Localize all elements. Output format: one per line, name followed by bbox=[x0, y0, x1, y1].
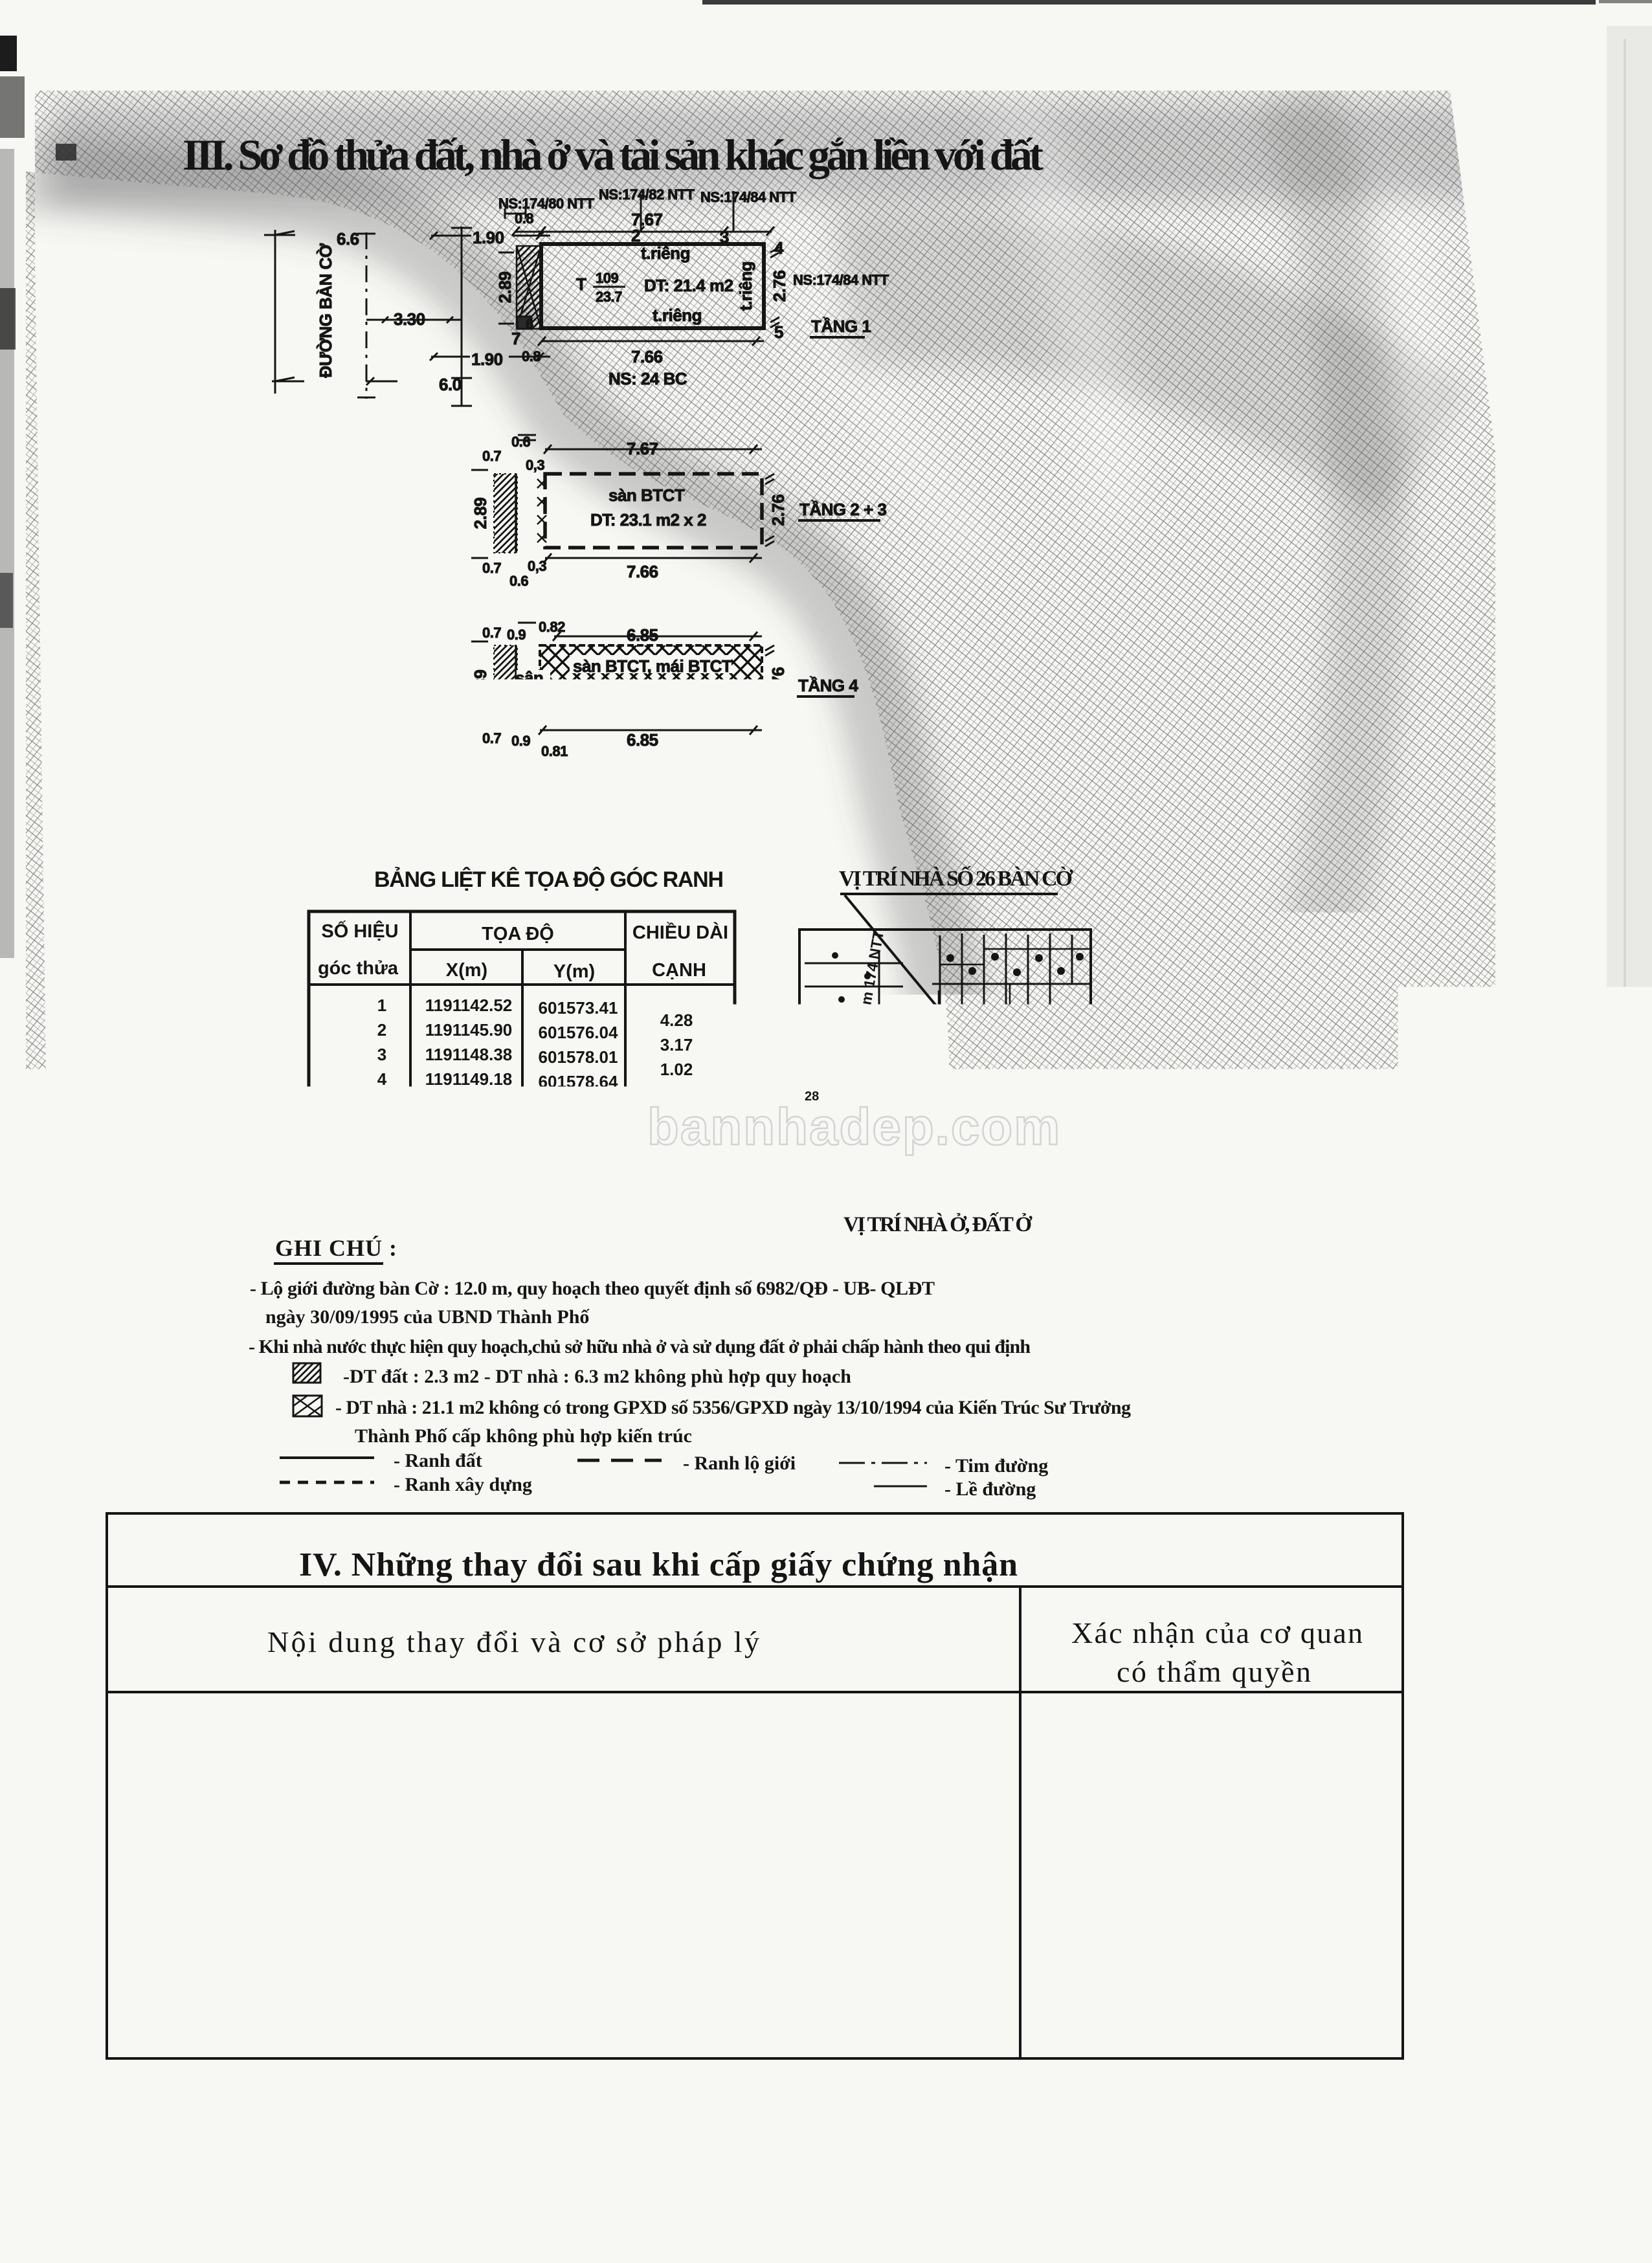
svg-text:1191148.38: 1191148.38 bbox=[425, 1045, 513, 1064]
svg-text:- Khi nhà nước thực hiện quy h: - Khi nhà nước thực hiện quy hoạch,chủ s… bbox=[249, 1336, 1031, 1357]
svg-text:t.riêng: t.riêng bbox=[736, 262, 755, 311]
svg-text:0,3: 0,3 bbox=[526, 457, 544, 473]
svg-text:601578.01: 601578.01 bbox=[539, 1047, 618, 1067]
svg-text:109: 109 bbox=[596, 270, 618, 286]
svg-text:6.85: 6.85 bbox=[627, 730, 658, 750]
svg-text:1191142.52: 1191142.52 bbox=[425, 1170, 513, 1190]
svg-text:GHI CHÚ :: GHI CHÚ : bbox=[275, 1235, 397, 1261]
svg-text:ngày 30/09/1995 của UBND Thành: ngày 30/09/1995 của UBND Thành Phố bbox=[265, 1306, 590, 1328]
svg-text:601580.81: 601580.81 bbox=[539, 1097, 618, 1116]
svg-text:3.17: 3.17 bbox=[660, 1035, 693, 1054]
svg-text:TẦNG 1: TẦNG 1 bbox=[811, 317, 871, 336]
svg-text:sàn BTCT, mái BTCT: sàn BTCT, mái BTCT bbox=[573, 656, 732, 676]
svg-text:7: 7 bbox=[511, 329, 520, 348]
svg-text:- Lề đường: - Lề đường bbox=[944, 1478, 1036, 1500]
svg-text:- Ranh lộ giới: - Ranh lộ giới bbox=[683, 1453, 796, 1474]
svg-text:Đ.BÀN CỜ: Đ.BÀN CỜ bbox=[821, 1067, 914, 1087]
svg-text:góc thửa: góc thửa bbox=[318, 958, 399, 979]
svg-text:2.89: 2.89 bbox=[471, 670, 490, 702]
svg-text:2.89: 2.89 bbox=[495, 272, 515, 304]
svg-text:sân: sân bbox=[515, 668, 543, 687]
svg-text:601573.41: 601573.41 bbox=[539, 1172, 618, 1191]
svg-text:TẦNG 2 + 3: TẦNG 2 + 3 bbox=[799, 500, 886, 519]
svg-text:7.67: 7.67 bbox=[627, 439, 658, 458]
svg-text:2.89: 2.89 bbox=[471, 498, 490, 530]
svg-text:NS:174/84 NTT: NS:174/84 NTT bbox=[793, 272, 889, 288]
svg-text:6.0: 6.0 bbox=[439, 375, 462, 394]
svg-text:Y(m): Y(m) bbox=[553, 961, 595, 982]
svg-text:23.7: 23.7 bbox=[596, 289, 622, 305]
svg-text:1191140.74: 1191140.74 bbox=[425, 1143, 513, 1163]
svg-text:601576.04: 601576.04 bbox=[539, 1023, 618, 1042]
svg-text:TỌA ĐỘ: TỌA ĐỘ bbox=[482, 922, 554, 944]
svg-text:5: 5 bbox=[774, 322, 783, 342]
svg-text:- Ranh xây dựng: - Ranh xây dựng bbox=[394, 1474, 532, 1495]
svg-text:0.7: 0.7 bbox=[482, 560, 501, 576]
svg-text:7.66: 7.66 bbox=[631, 347, 663, 366]
svg-text:0,3: 0,3 bbox=[528, 558, 546, 574]
svg-text:NS:174/80 NTT: NS:174/80 NTT bbox=[498, 195, 595, 212]
svg-text:- Ranh đất: - Ranh đất bbox=[394, 1450, 482, 1471]
svg-text:0.6: 0.6 bbox=[509, 573, 528, 589]
svg-text:2.76: 2.76 bbox=[770, 271, 789, 302]
svg-text:X(m): X(m) bbox=[446, 960, 487, 981]
svg-text:1191140.90: 1191140.90 bbox=[425, 1119, 513, 1138]
svg-text:1: 1 bbox=[377, 996, 386, 1015]
svg-text:0.6: 0.6 bbox=[511, 434, 530, 450]
svg-text:t.riêng: t.riêng bbox=[653, 306, 702, 325]
svg-text:1191142.52: 1191142.52 bbox=[425, 996, 513, 1015]
svg-text:Xác nhận của cơ quan: Xác nhận của cơ quan bbox=[1071, 1616, 1363, 1649]
svg-text:sàn BTCT: sàn BTCT bbox=[608, 485, 685, 505]
svg-text:0.7: 0.7 bbox=[482, 448, 501, 464]
svg-text:10.0: 10.0 bbox=[858, 1022, 887, 1039]
svg-text:1191147.47: 1191147.47 bbox=[425, 1094, 513, 1113]
svg-text:VỊ TRÍ NHÀ Ở, ĐẤT Ở: VỊ TRÍ NHÀ Ở, ĐẤT Ở bbox=[843, 1211, 1032, 1236]
svg-text:SỐ HIỆU: SỐ HIỆU bbox=[321, 920, 398, 942]
svg-text:ĐƯỜNG BÀN CỜ: ĐƯỜNG BÀN CỜ bbox=[316, 243, 335, 378]
svg-text:- Lộ giới đường bàn Cờ : 12.0: - Lộ giới đường bàn Cờ : 12.0 m, quy hoạ… bbox=[250, 1278, 935, 1299]
svg-text:t.riêng: t.riêng bbox=[641, 243, 690, 263]
svg-text:0.8: 0.8 bbox=[522, 348, 541, 364]
svg-text:III. Sơ đồ thửa đất, nhà ở và: III. Sơ đồ thửa đất, nhà ở và tài sản kh… bbox=[183, 130, 1044, 179]
svg-text:6: 6 bbox=[377, 1119, 386, 1138]
svg-text:VỊ TRÍ NHÀ SỐ 26 BÀN CỜ: VỊ TRÍ NHÀ SỐ 26 BÀN CỜ bbox=[839, 865, 1073, 891]
svg-text:NS:174/82 NTT: NS:174/82 NTT bbox=[599, 186, 695, 203]
svg-text:601575.82: 601575.82 bbox=[539, 1121, 618, 1141]
svg-text:Thành Phố cấp không phù hợp ki: Thành Phố cấp không phù hợp kiến trúc bbox=[355, 1425, 692, 1447]
svg-text:3: 3 bbox=[377, 1045, 386, 1064]
svg-text:7.66: 7.66 bbox=[627, 562, 658, 581]
svg-text:1191149.18: 1191149.18 bbox=[425, 1069, 513, 1089]
svg-text:3.30: 3.30 bbox=[394, 309, 425, 329]
svg-text:- Tim đường: - Tim đường bbox=[944, 1455, 1048, 1477]
svg-text:DT: 23.1 m2 x 2: DT: 23.1 m2 x 2 bbox=[590, 510, 706, 530]
svg-text:2.89: 2.89 bbox=[660, 1164, 693, 1183]
svg-text:NS:174/84 NTT: NS:174/84 NTT bbox=[700, 189, 797, 205]
svg-text:2: 2 bbox=[377, 1020, 386, 1040]
svg-text:6.85: 6.85 bbox=[627, 625, 658, 645]
svg-text:Nội dung thay đổi và cơ sở phá: Nội dung thay đổi và cơ sở pháp lý bbox=[267, 1625, 759, 1658]
svg-text:DT: 21.4 m2: DT: 21.4 m2 bbox=[644, 276, 733, 295]
svg-text:CHIỀU DÀI: CHIỀU DÀI bbox=[632, 921, 728, 943]
svg-text:2.76: 2.76 bbox=[768, 495, 788, 526]
svg-text:4: 4 bbox=[774, 238, 784, 258]
svg-text:4: 4 bbox=[377, 1069, 387, 1089]
svg-text:6.6: 6.6 bbox=[337, 229, 359, 249]
svg-text:1191145.90: 1191145.90 bbox=[425, 1020, 513, 1040]
svg-text:601575.69: 601575.69 bbox=[539, 1146, 618, 1165]
svg-text:1: 1 bbox=[377, 1170, 386, 1190]
svg-text:1.90: 1.90 bbox=[473, 228, 504, 247]
svg-text:4.28: 4.28 bbox=[660, 1010, 693, 1030]
svg-text:0.9: 0.9 bbox=[511, 733, 530, 749]
svg-text:0.7: 0.7 bbox=[482, 625, 501, 641]
svg-text:bannhadep.com: bannhadep.com bbox=[647, 1098, 1061, 1155]
svg-text:TẦNG 4: TẦNG 4 bbox=[798, 676, 858, 695]
svg-text:6: 6 bbox=[526, 316, 533, 332]
svg-text:0.82: 0.82 bbox=[539, 619, 565, 635]
svg-text:601573.41: 601573.41 bbox=[539, 998, 618, 1018]
svg-text:1.02: 1.02 bbox=[660, 1060, 693, 1079]
svg-text:5: 5 bbox=[377, 1094, 386, 1113]
svg-text:IV. Những thay đổi sau khi cấp: IV. Những thay đổi sau khi cấp giấy chứn… bbox=[299, 1546, 1018, 1583]
svg-text:7: 7 bbox=[377, 1143, 386, 1163]
svg-text:có thẩm quyền: có thẩm quyền bbox=[1117, 1655, 1311, 1688]
svg-text:BẢNG LIỆT KÊ TỌA ĐỘ GÓC RANH: BẢNG LIỆT KÊ TỌA ĐỘ GÓC RANH bbox=[374, 867, 724, 892]
svg-text:2.76: 2.76 bbox=[768, 667, 788, 699]
svg-text:601578.64: 601578.64 bbox=[539, 1072, 618, 1091]
svg-text:T: T bbox=[576, 274, 586, 294]
svg-text:DT: 19.4 m2: DT: 19.4 m2 bbox=[602, 682, 691, 702]
svg-text:CẠNH: CẠNH bbox=[652, 960, 706, 981]
svg-text:0.9: 0.9 bbox=[507, 627, 526, 643]
svg-text:NS: 24 BC: NS: 24 BC bbox=[608, 369, 687, 388]
svg-text:0.7: 0.7 bbox=[482, 730, 501, 746]
svg-text:- DT nhà : 21.1 m2 không có tr: - DT nhà : 21.1 m2 không có trong GPXD s… bbox=[335, 1397, 1131, 1418]
svg-text:0.81: 0.81 bbox=[541, 743, 568, 759]
svg-text:0.8: 0.8 bbox=[515, 210, 533, 227]
svg-text:1.90: 1.90 bbox=[471, 350, 503, 369]
svg-text:ranh lộ giới: ranh lộ giới bbox=[537, 361, 557, 449]
svg-text:-DT đất : 2.3 m2 - DT nhà : 6.: -DT đất : 2.3 m2 - DT nhà : 6.3 m2 không… bbox=[343, 1366, 851, 1387]
